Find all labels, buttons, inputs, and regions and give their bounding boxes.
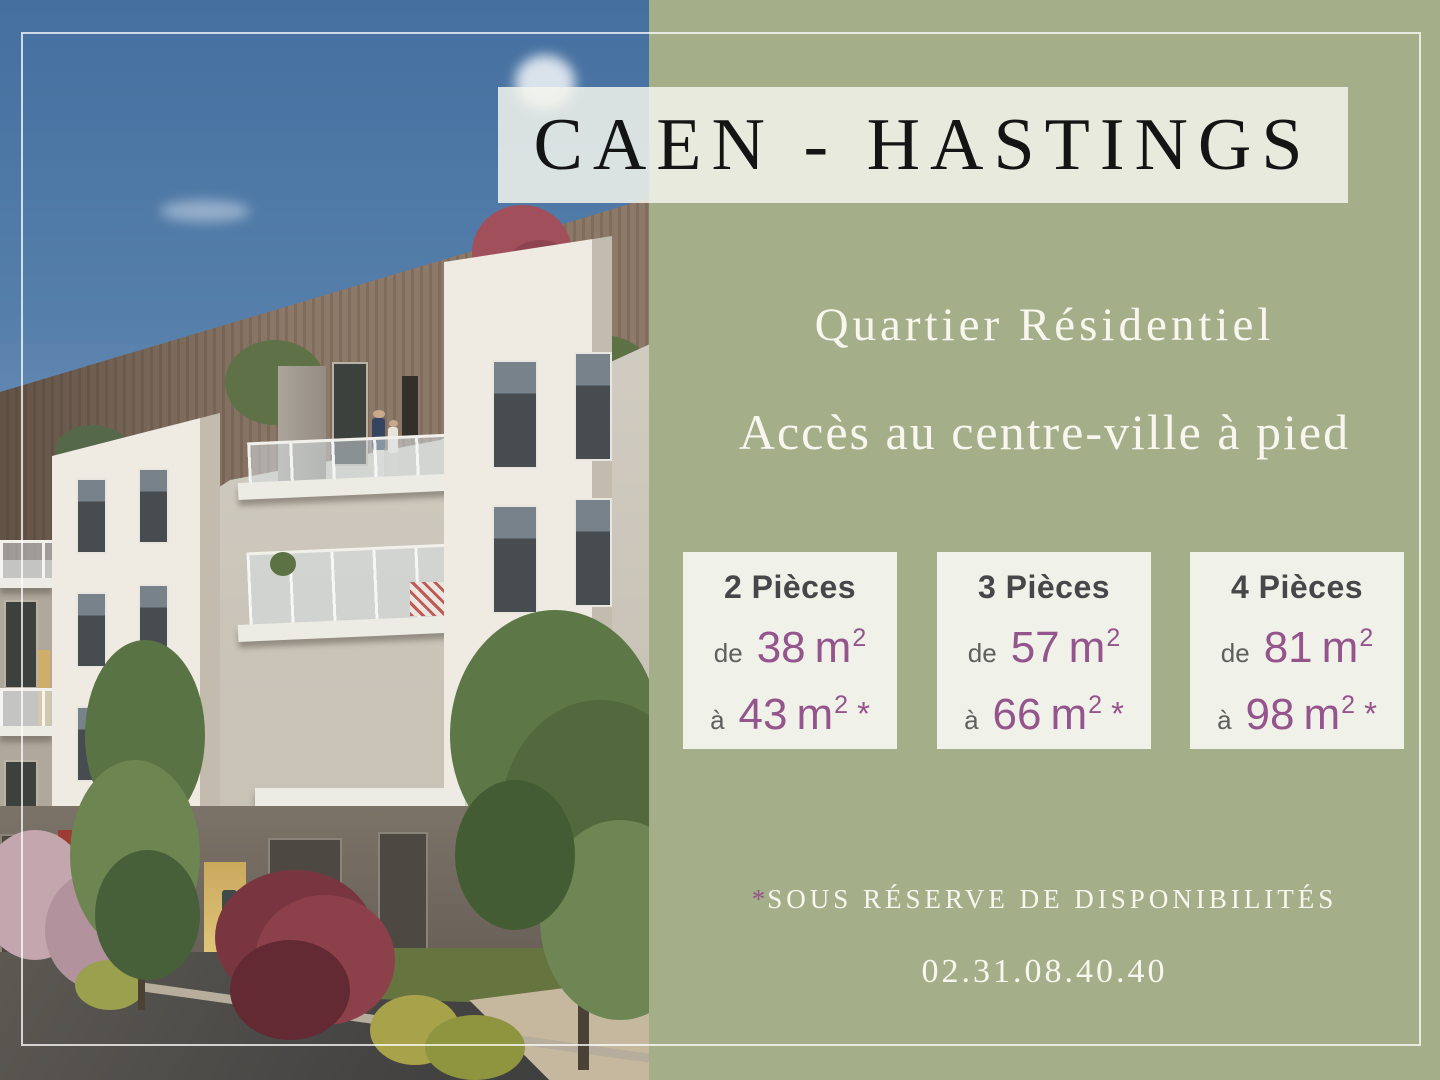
area-prefix: à	[710, 705, 724, 736]
window	[492, 360, 538, 469]
phone-number: 02.31.08.40.40	[649, 953, 1440, 991]
balcony-glass	[0, 688, 52, 729]
superscript: 2	[1359, 624, 1373, 653]
card-title: 4 Pièces	[1231, 569, 1363, 606]
area-from-line: de 57 m 2	[968, 623, 1120, 673]
footnote-text: SOUS RÉSERVE DE DISPONIBILITÉS	[767, 884, 1337, 914]
flyer-page: CAEN - HASTINGS Quartier Résidentiel Acc…	[0, 0, 1440, 1080]
area-unit: m	[1069, 623, 1106, 673]
superscript: 2	[834, 691, 848, 720]
cloud	[160, 200, 250, 222]
area-value: 43	[739, 690, 788, 740]
superscript: 2	[1341, 691, 1355, 720]
area-prefix: de	[968, 638, 997, 669]
area-value: 38	[757, 623, 806, 673]
area-unit: m	[1304, 690, 1341, 740]
page-title: CAEN - HASTINGS	[534, 103, 1313, 188]
superscript: 2	[1106, 624, 1120, 653]
asterisk: *	[857, 695, 870, 733]
balcony-slab	[0, 578, 52, 588]
subtitle-acces: Accès au centre-ville à pied	[649, 403, 1440, 461]
footnote-asterisk: *	[752, 884, 766, 914]
person-woman	[389, 420, 398, 427]
bush-burgundy	[230, 940, 350, 1040]
area-value: 57	[1011, 623, 1060, 673]
tree-left-foliage	[95, 850, 200, 980]
area-unit: m	[1051, 690, 1088, 740]
card-title: 3 Pièces	[978, 569, 1110, 606]
area-unit: m	[797, 690, 834, 740]
asterisk: *	[1364, 695, 1377, 733]
area-prefix: de	[1221, 638, 1250, 669]
superscript: 2	[852, 624, 866, 653]
footnote: *SOUS RÉSERVE DE DISPONIBILITÉS	[649, 884, 1440, 915]
window	[574, 498, 612, 607]
window	[138, 468, 169, 544]
area-value: 98	[1246, 690, 1295, 740]
balcony-glass	[0, 540, 52, 581]
title-box: CAEN - HASTINGS	[498, 87, 1348, 203]
area-prefix: à	[1217, 705, 1231, 736]
subtitle-quartier: Quartier Résidentiel	[649, 298, 1440, 352]
superscript: 2	[1088, 691, 1102, 720]
card-4-pieces: 4 Pièces de 81 m 2 à 98 m 2 *	[1190, 552, 1404, 749]
card-2-pieces: 2 Pièces de 38 m 2 à 43 m 2 *	[683, 552, 897, 749]
area-from-line: de 38 m 2	[714, 623, 866, 673]
window	[574, 352, 612, 461]
area-from-line: de 81 m 2	[1221, 623, 1373, 673]
window	[492, 505, 538, 614]
grass-yellow	[425, 1015, 525, 1080]
card-title: 2 Pièces	[724, 569, 856, 606]
window	[76, 592, 107, 668]
utility-pipe	[402, 376, 418, 436]
area-value: 81	[1264, 623, 1313, 673]
balcony-plant	[270, 552, 296, 576]
tree-right-foliage	[455, 780, 575, 930]
area-value: 66	[993, 690, 1042, 740]
balcony-slab	[0, 726, 52, 736]
area-to-line: à 66 m 2 *	[964, 690, 1124, 740]
card-3-pieces: 3 Pièces de 57 m 2 à 66 m 2 *	[937, 552, 1151, 749]
window	[76, 478, 107, 554]
red-trellis	[410, 582, 444, 616]
area-prefix: de	[714, 638, 743, 669]
area-unit: m	[815, 623, 852, 673]
area-prefix: à	[964, 705, 978, 736]
area-to-line: à 98 m 2 *	[1217, 690, 1377, 740]
person-man	[373, 410, 385, 418]
area-to-line: à 43 m 2 *	[710, 690, 870, 740]
window	[4, 600, 38, 689]
asterisk: *	[1111, 695, 1124, 733]
area-unit: m	[1322, 623, 1359, 673]
canopy	[255, 788, 465, 806]
